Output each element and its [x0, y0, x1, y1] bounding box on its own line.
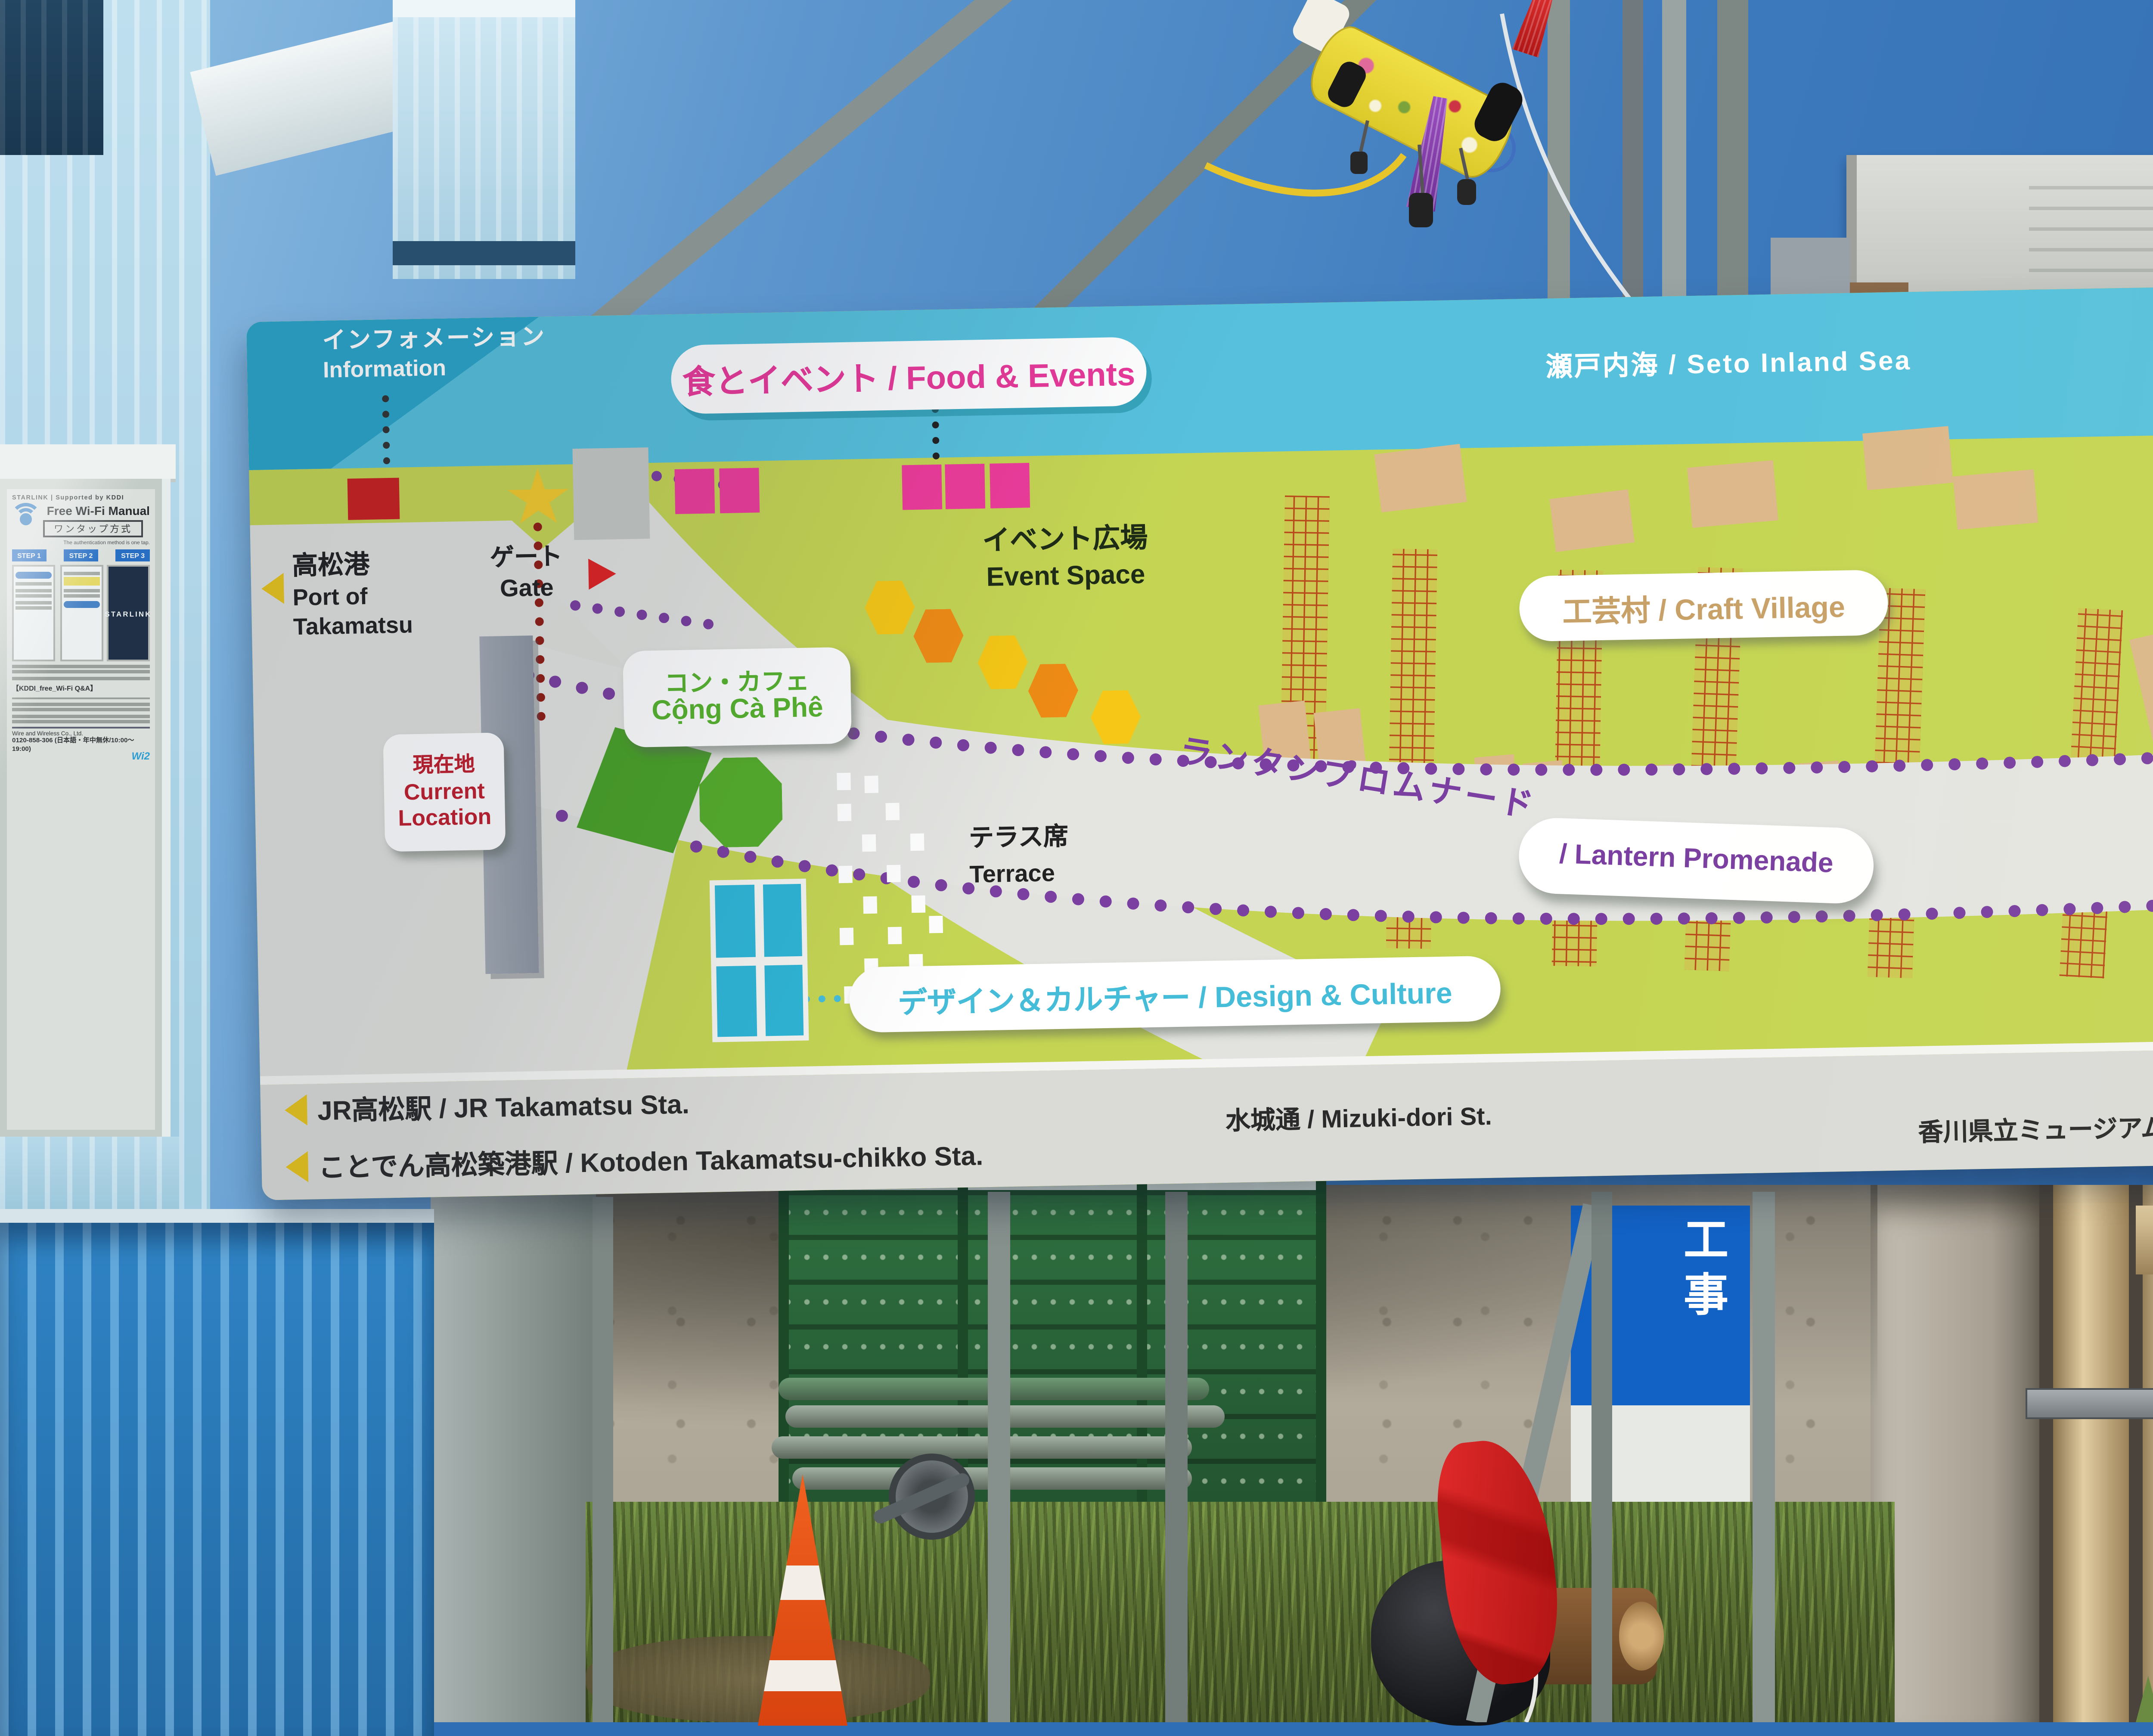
left-arrow-icon	[285, 1094, 307, 1126]
food-stall-marker	[945, 464, 985, 509]
photo-of-map-signboard: STARLINK | Supported by KDDI Free Wi-Fi …	[0, 0, 2153, 1722]
cong-ca-phe-box: コン・カフェ Cộng Cà Phê	[623, 647, 852, 748]
festival-map-sign: インフォメーション Information 食とイベント / Food & Ev…	[246, 280, 2153, 1200]
port-direction-arrow-icon	[261, 573, 284, 604]
design-culture-pill: デザイン＆カルチャー / Design & Culture	[849, 955, 1501, 1032]
food-stall-marker	[674, 468, 715, 514]
information-label: インフォメーション Information	[322, 323, 547, 384]
current-location-box: 現在地 Current Location	[383, 732, 506, 852]
event-space-label: イベント広場 Event Space	[953, 522, 1178, 597]
port-of-takamatsu-label: 高松港 Port of Takamatsu	[261, 550, 413, 643]
food-events-pill: 食とイベント / Food & Events	[670, 337, 1147, 414]
lantern-promenade-pill: / Lantern Promenade	[1517, 817, 1875, 905]
footer-mizuki-dori: 水城通 / Mizuki-dori St.	[1225, 1097, 1492, 1138]
gate-direction-arrow-icon	[588, 558, 616, 590]
information-en: Information	[323, 353, 546, 384]
food-stall-marker	[902, 465, 942, 510]
food-stall-marker	[719, 468, 760, 513]
terrace-label: テラス席 Terrace	[968, 821, 1108, 890]
information-booth-marker	[347, 478, 400, 520]
left-arrow-icon	[285, 1151, 308, 1183]
craft-village-pill: 工芸村 / Craft Village	[1519, 570, 1889, 642]
window-panes-icon	[710, 879, 809, 1042]
footer-jr-takamatsu: JR高松駅 / JR Takamatsu Sta.	[284, 1084, 689, 1129]
information-jp: インフォメーション	[322, 323, 546, 356]
food-stall-marker	[990, 463, 1030, 508]
gate-label: ゲート Gate	[471, 540, 582, 604]
gray-building-block	[572, 447, 650, 540]
